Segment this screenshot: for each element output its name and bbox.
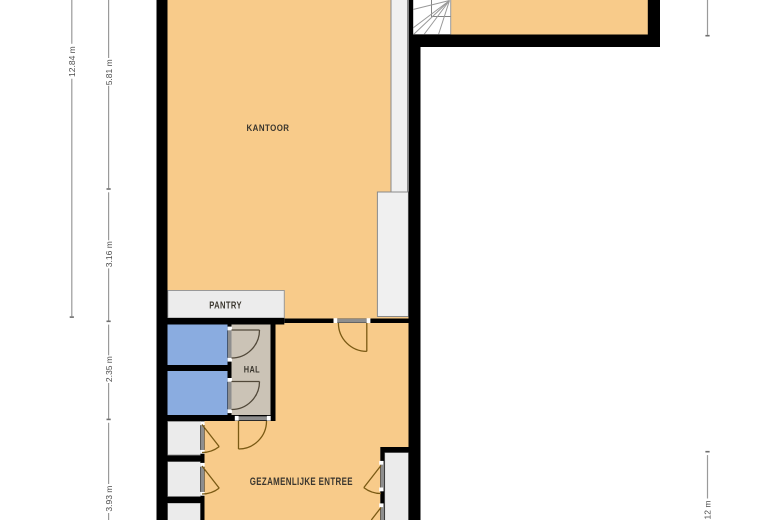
svg-text:HAL: HAL xyxy=(244,365,260,375)
svg-text:3.16 m: 3.16 m xyxy=(104,241,114,267)
svg-text:12 m: 12 m xyxy=(703,501,713,520)
svg-text:5.81 m: 5.81 m xyxy=(104,59,114,85)
svg-text:2.35 m: 2.35 m xyxy=(104,356,114,382)
svg-text:KANTOOR: KANTOOR xyxy=(247,123,290,134)
svg-text:12.84 m: 12.84 m xyxy=(67,46,77,77)
svg-text:3.93 m: 3.93 m xyxy=(104,486,114,512)
svg-text:PANTRY: PANTRY xyxy=(209,299,242,310)
svg-text:GEZAMENLIJKE ENTREE: GEZAMENLIJKE ENTREE xyxy=(250,476,353,489)
